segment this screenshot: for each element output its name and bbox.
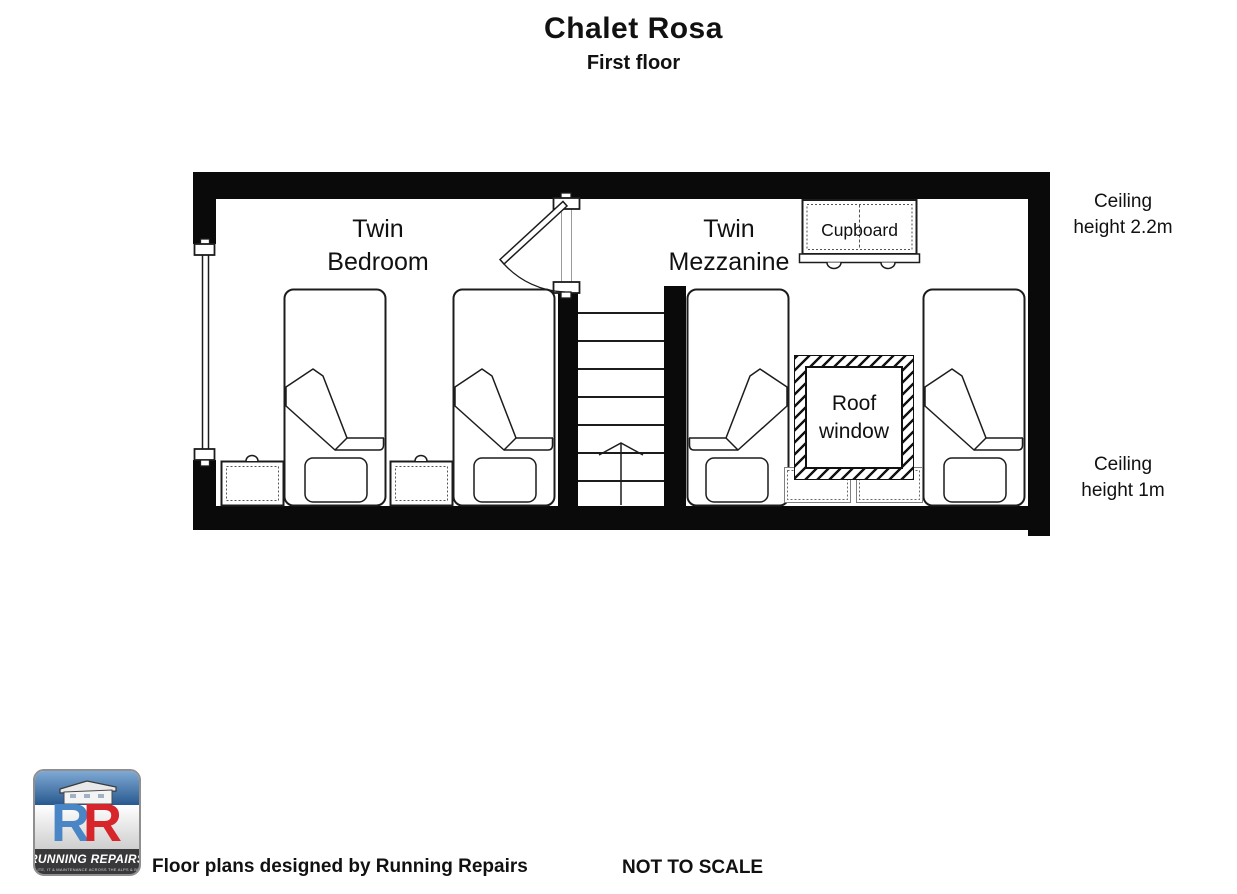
header: Chalet Rosa First floor [30, 12, 1237, 75]
room-label-twin-mezzanine: Twin Mezzanine [629, 213, 829, 279]
page-title: Chalet Rosa [30, 12, 1237, 46]
stairs-up-arrow [599, 443, 643, 455]
bed [454, 290, 555, 506]
door-swing-arc [504, 264, 565, 292]
roof-window-label: Roof window [805, 366, 903, 469]
cupboard-label: Cupboard [802, 220, 917, 241]
ceiling-height-upper: Ceiling height 2.2m [1060, 189, 1186, 241]
wall-right [1028, 172, 1050, 536]
floor-plan-page: Chalet Rosa First floor [0, 0, 1237, 894]
running-repairs-logo: R R RUNNING REPAIRS SATELLITE, IT & MAIN… [33, 769, 141, 876]
bedside-cabinet [222, 456, 284, 506]
logo-r-red: R [83, 796, 122, 850]
not-to-scale-text: NOT TO SCALE [622, 857, 763, 879]
logo-tagline: SATELLITE, IT & MAINTENANCE ACROSS THE A… [33, 867, 141, 872]
credit-text: Floor plans designed by Running Repairs [152, 856, 528, 878]
door [500, 193, 580, 298]
staircase [578, 313, 664, 505]
bed [688, 290, 789, 506]
ceiling-height-lower: Ceiling height 1m [1060, 452, 1186, 504]
stair-wall-left [558, 286, 578, 506]
bedside-cabinet [391, 456, 453, 506]
wall-left-upper [193, 172, 216, 244]
roof-window: Roof window [794, 355, 914, 480]
bed [924, 290, 1025, 506]
logo-monogram: R R [35, 805, 139, 851]
window [195, 239, 215, 466]
logo-brand-text: RUNNING REPAIRS [33, 852, 141, 866]
stair-wall-right [664, 286, 686, 506]
door-jamb-top [554, 198, 580, 209]
plan-vector-layer [0, 0, 1237, 894]
wall-top [193, 172, 1050, 199]
cupboard-foot [881, 263, 895, 269]
wall-left-lower [193, 460, 216, 530]
wall-bottom [193, 506, 1050, 530]
bed [285, 290, 386, 506]
cupboard-foot [827, 263, 841, 269]
door-leaf [500, 202, 567, 265]
logo-band: RUNNING REPAIRS SATELLITE, IT & MAINTENA… [35, 849, 139, 874]
page-subtitle: First floor [30, 52, 1237, 75]
room-label-twin-bedroom: Twin Bedroom [278, 213, 478, 279]
